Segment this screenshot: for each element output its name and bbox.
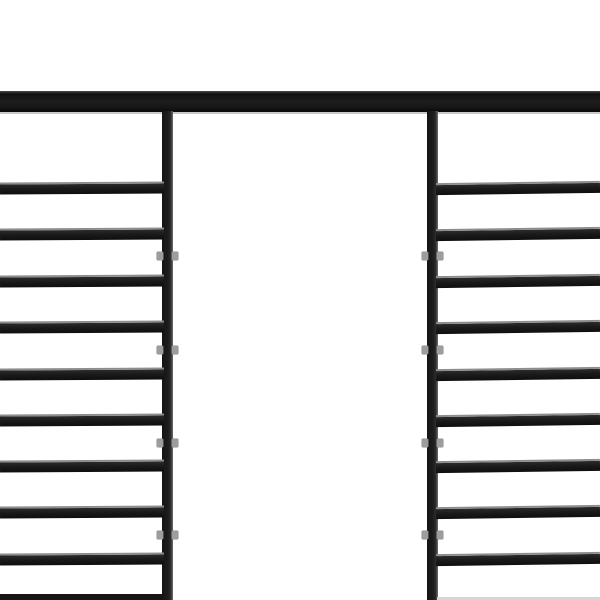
bracket-clip <box>422 439 428 447</box>
left-slat <box>0 320 164 333</box>
right-slat <box>436 320 600 334</box>
left-slat <box>0 227 164 240</box>
left-bottom-partial-slat <box>0 594 164 600</box>
product-photo-pergola-frame <box>0 0 600 600</box>
right-slat <box>436 181 600 195</box>
right-slat <box>436 274 600 288</box>
bracket-clip <box>172 346 178 354</box>
right-slat <box>436 505 600 519</box>
bracket-clip <box>422 346 428 354</box>
bracket-clip <box>157 439 163 447</box>
left-slat <box>0 459 164 472</box>
right-slat <box>436 459 600 473</box>
bracket-clip <box>437 252 443 260</box>
left-slat <box>0 274 164 287</box>
top-beam <box>0 91 600 112</box>
right-slat <box>436 413 600 427</box>
left-slat <box>0 552 164 565</box>
left-slat <box>0 505 164 518</box>
bracket-clip <box>157 252 163 260</box>
bracket-clip <box>437 439 443 447</box>
beam-underside-highlight <box>0 112 600 114</box>
left-slat <box>0 367 164 380</box>
bracket-clip <box>437 346 443 354</box>
right-slat <box>436 552 600 566</box>
right-slat <box>436 227 600 241</box>
bracket-clip <box>422 531 428 539</box>
bracket-clip <box>172 439 178 447</box>
left-slat <box>0 181 164 194</box>
bracket-clip <box>172 531 178 539</box>
bracket-clip <box>437 531 443 539</box>
bracket-clip <box>172 252 178 260</box>
left-slat <box>0 413 164 426</box>
bracket-clip <box>422 252 428 260</box>
bracket-clip <box>157 531 163 539</box>
right-slat <box>436 367 600 381</box>
bracket-clip <box>157 346 163 354</box>
